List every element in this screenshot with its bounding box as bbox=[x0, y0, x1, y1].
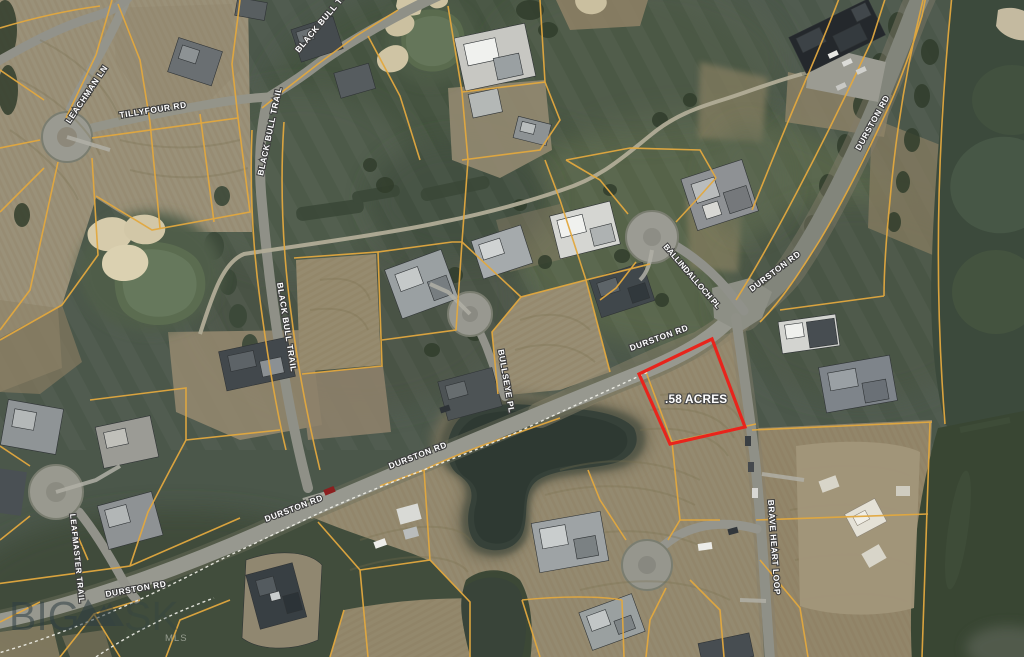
svg-text:.58 ACRES: .58 ACRES bbox=[665, 392, 727, 406]
svg-text:BIG: BIG bbox=[9, 593, 80, 639]
svg-text:MLS: MLS bbox=[165, 633, 188, 644]
